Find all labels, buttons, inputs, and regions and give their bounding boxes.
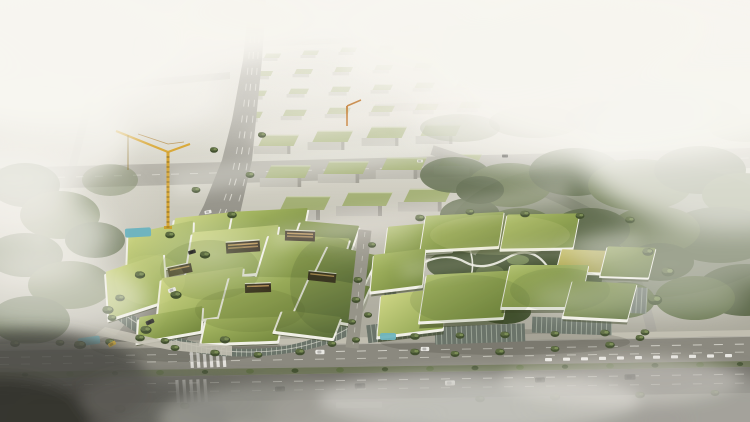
pool [380,333,396,340]
architectural-rendering [0,0,750,422]
pool [125,227,151,237]
